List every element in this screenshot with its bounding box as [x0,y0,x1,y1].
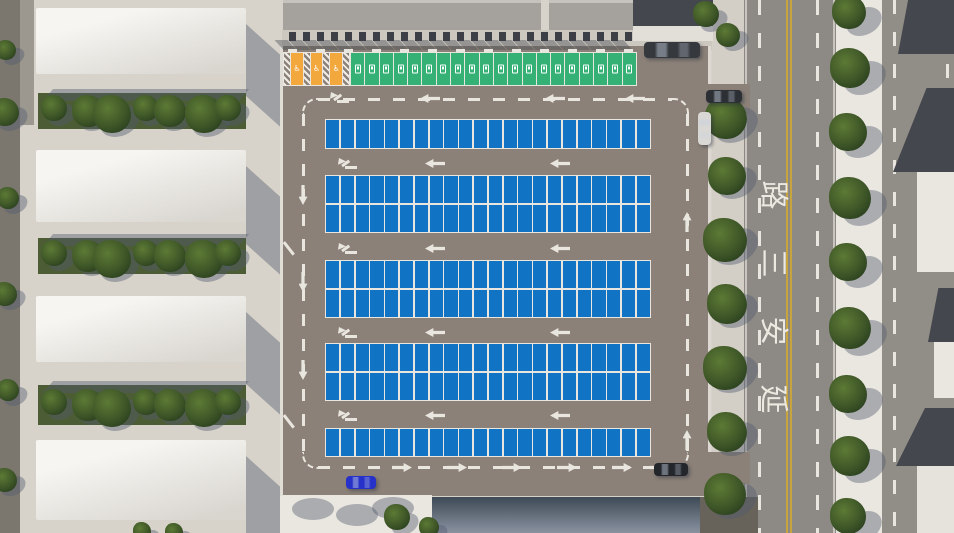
parking-stall-standard [459,176,472,203]
ev-charger-icon-dot [543,67,545,70]
parking-stall-standard [385,261,398,288]
tree-icon [704,473,746,515]
parking-lot-aerial-view: ♿♿♿路三安延 [0,0,954,533]
tree-icon [93,389,131,427]
parking-stall-standard [385,120,398,148]
parking-stall-standard [637,261,650,288]
parking-stall-standard [444,176,457,203]
charging-pile [499,32,506,41]
ev-charger-icon [398,65,404,74]
parking-stall-standard [548,429,561,456]
warehouse-building [36,440,246,520]
tree-icon [703,346,747,390]
parking-stall-standard [592,205,605,232]
parking-stall-standard [533,373,546,400]
standard-stall-row [325,289,651,318]
turn-arrow-marking [337,100,349,103]
tree-icon [703,218,747,262]
west-edge-building [20,0,34,125]
parking-stall-standard [518,120,531,148]
parking-stall-standard [533,429,546,456]
parking-stall-ev [380,53,393,85]
vehicle-windows [707,91,741,102]
turn-arrow-marking [345,418,357,421]
ev-charger-icon [526,65,532,74]
parking-stall-standard [370,290,383,317]
blue-car-bottom-lane [346,476,376,489]
tree-icon [215,389,241,415]
road-name-char: 安 [757,313,791,349]
parking-stall-standard [607,120,620,148]
ev-charger-icon [555,65,561,74]
parking-stall-standard [459,205,472,232]
tree-icon [830,498,866,533]
charging-pile [485,32,492,41]
ev-charger-icon [355,65,361,74]
wheelchair-icon: ♿ [293,65,300,73]
parking-stall-standard [504,120,517,148]
parking-stall-standard [518,261,531,288]
parking-stall-standard [489,344,502,371]
turn-arrow-marking [345,166,357,169]
parking-stall-standard [370,429,383,456]
parking-stall-standard [622,290,635,317]
hatch-buffer [304,53,310,85]
parking-stall-standard [459,373,472,400]
parking-stall-ev [623,53,636,85]
parking-stall-standard [474,429,487,456]
ev-charger-icon-dot [400,67,402,70]
parking-stall-standard [474,205,487,232]
ev-charger-icon-dot [614,67,616,70]
parking-stall-standard [563,176,576,203]
parking-stall-standard [415,261,428,288]
parking-stall-standard [563,261,576,288]
parking-stall-accessible: ♿ [291,53,302,85]
parking-stall-standard [533,261,546,288]
parking-stall-standard [518,290,531,317]
parking-stall-standard [459,429,472,456]
parking-stall-standard [489,429,502,456]
parking-stall-standard [637,176,650,203]
parking-stall-standard [518,205,531,232]
slate-roof-building [432,497,700,533]
parking-stall-standard [622,120,635,148]
parking-stall-standard [474,261,487,288]
ev-charger-icon-dot [457,67,459,70]
ev-charger-icon-dot [585,67,587,70]
lane-divider-dash [816,0,819,533]
warehouse-building [36,8,246,74]
parking-stall-standard [415,290,428,317]
tree-icon [707,412,747,452]
pile-tick-marking [456,49,465,52]
tree-icon [716,23,740,47]
parking-stall-ev [394,53,407,85]
wheelchair-icon: ♿ [333,65,340,73]
ev-charger-icon [483,65,489,74]
parking-stall-ev [508,53,521,85]
parking-stall-standard [592,373,605,400]
parking-stall-ev [523,53,536,85]
tree-icon [215,95,241,121]
ev-charger-icon-dot [414,67,416,70]
parking-stall-standard [430,429,443,456]
parking-stall-standard [607,373,620,400]
pile-tick-marking [540,49,549,52]
parking-stall-standard [607,429,620,456]
road-name-char: 三 [757,245,791,281]
charging-pile [569,32,576,41]
ev-charger-icon [612,65,618,74]
parking-stall-standard [474,344,487,371]
parking-stall-standard [548,120,561,148]
pile-tick-marking [512,49,521,52]
parking-stall-standard [400,261,413,288]
parking-stall-standard [356,290,369,317]
charging-pile [373,32,380,41]
parking-stall-standard [370,176,383,203]
charging-pile [345,32,352,41]
parking-stall-standard [504,290,517,317]
tree-icon [154,95,186,127]
tree-icon [384,504,410,530]
parking-stall-standard [474,290,487,317]
ev-charger-icon-dot [557,67,559,70]
turn-arrow-marking [345,251,357,254]
parking-stall-standard [415,120,428,148]
parking-stall-ev [580,53,593,85]
parking-stall-standard [637,120,650,148]
parking-stall-standard [578,429,591,456]
parking-stall-ev [480,53,493,85]
pile-tick-marking [400,49,409,52]
ev-charger-icon-dot [528,67,530,70]
pile-tick-marking [288,49,297,52]
ev-charger-icon-dot [500,67,502,70]
charging-pile [359,32,366,41]
parking-stall-standard [474,176,487,203]
pile-tick-marking [624,49,633,52]
ev-charger-icon-dot [485,67,487,70]
parking-stall-standard [578,205,591,232]
parking-stall-standard [415,429,428,456]
building-wall [934,342,954,398]
charging-pile [625,32,632,41]
parking-stall-ev [608,53,621,85]
road-name-char: 延 [757,381,791,417]
tree-icon [41,240,67,266]
charging-pile [527,32,534,41]
tree-icon [829,307,871,349]
tree-icon [154,389,186,421]
charging-pile [387,32,394,41]
parking-stall-standard [385,176,398,203]
parking-stall-standard [489,261,502,288]
charging-pile [457,32,464,41]
tree-icon [693,1,719,27]
parking-stall-standard [592,176,605,203]
ev-charger-icon-dot [442,67,444,70]
ev-charger-icon-dot [571,67,573,70]
parking-stall-standard [533,205,546,232]
lot-east-curb [708,46,711,84]
parking-stall-standard [459,290,472,317]
parking-stall-standard [489,373,502,400]
parking-stall-standard [444,261,457,288]
tree-icon [419,517,439,533]
parking-stall-standard [326,290,339,317]
dark-car-exit-lane [654,463,688,476]
parking-stall-standard [578,261,591,288]
parking-stall-standard [385,290,398,317]
parking-stall-standard [400,429,413,456]
parking-stall-standard [370,120,383,148]
parking-stall-standard [326,205,339,232]
charging-pile [429,32,436,41]
parking-stall-standard [607,176,620,203]
ev-charger-icon [512,65,518,74]
charging-pile [471,32,478,41]
parking-stall-standard [563,344,576,371]
road-name-char: 路 [757,177,791,213]
parking-stall-standard [504,429,517,456]
parking-stall-standard [326,120,339,148]
parking-stall-standard [533,176,546,203]
parking-stall-standard [548,373,561,400]
ev-charger-icon [426,65,432,74]
top-building-west [283,0,541,34]
parking-stall-standard [415,373,428,400]
parking-stall-standard [622,373,635,400]
parking-stall-standard [430,344,443,371]
parking-stall-standard [489,290,502,317]
parking-stall-standard [548,261,561,288]
parking-stall-standard [489,205,502,232]
parking-stall-standard [489,176,502,203]
tree-icon [705,97,747,139]
parking-stall-accessible: ♿ [330,53,341,85]
parking-stall-standard [400,344,413,371]
tree-icon [829,243,867,281]
parking-stall-standard [326,429,339,456]
parking-stall-standard [444,429,457,456]
charging-pile [611,32,618,41]
building-wall [917,466,954,533]
parking-stall-standard [430,205,443,232]
parking-stall-standard [578,176,591,203]
parking-stall-standard [459,344,472,371]
standard-stall-row [325,119,651,149]
parking-stall-standard [415,344,428,371]
tree-icon [829,177,871,219]
parking-stall-standard [622,344,635,371]
pile-tick-marking [372,49,381,52]
standard-stall-row [325,260,651,289]
parking-stall-standard [622,261,635,288]
parking-stall-ev [408,53,421,85]
parking-stall-standard [341,261,354,288]
tree-shadow [292,498,334,520]
parking-stall-standard [504,176,517,203]
parking-stall-standard [326,344,339,371]
ev-charger-icon [626,65,632,74]
parking-stall-standard [444,120,457,148]
parking-stall-standard [533,120,546,148]
parking-stall-standard [385,205,398,232]
parking-stall-standard [637,205,650,232]
tree-icon [707,284,747,324]
parking-stall-ev [594,53,607,85]
pile-tick-marking [428,49,437,52]
vehicle-windows [699,113,710,144]
parking-stall-standard [518,344,531,371]
parking-stall-standard [370,261,383,288]
parking-stall-standard [518,429,531,456]
parking-stall-standard [518,176,531,203]
parking-stall-standard [341,120,354,148]
parking-stall-standard [430,261,443,288]
parking-stall-ev [451,53,464,85]
charging-pile [583,32,590,41]
parking-stall-standard [592,429,605,456]
vehicle-windows [347,477,375,488]
west-edge-road [0,0,20,533]
parking-stall-ev [565,53,578,85]
parking-stall-standard [400,176,413,203]
ev-charger-icon-dot [357,67,359,70]
charging-pile [513,32,520,41]
parking-stall-standard [370,344,383,371]
parking-stall-standard [592,120,605,148]
parking-stall-standard [400,205,413,232]
pile-tick-marking [596,49,605,52]
parking-stall-standard [430,120,443,148]
ev-charger-icon-dot [514,67,516,70]
parking-stall-standard [592,290,605,317]
parking-stall-standard [563,290,576,317]
lane-divider-dash [893,0,896,533]
charging-pile [443,32,450,41]
parking-stall-standard [370,373,383,400]
parking-stall-standard [533,290,546,317]
parking-stall-standard [592,344,605,371]
charging-pile [555,32,562,41]
tree-icon [829,375,867,413]
parking-stall-standard [622,176,635,203]
parking-stall-standard [607,344,620,371]
parking-stall-standard [415,176,428,203]
standard-stall-row [325,175,651,204]
ev-charger-icon [412,65,418,74]
parking-stall-standard [578,290,591,317]
parking-stall-standard [341,176,354,203]
ev-charger-icon [583,65,589,74]
hatch-buffer [343,53,349,85]
tree-icon [154,240,186,272]
vehicle-windows [655,464,687,475]
parking-stall-standard [578,120,591,148]
parking-stall-standard [533,344,546,371]
parking-stall-standard [430,176,443,203]
tree-icon [93,240,131,278]
parking-stall-standard [400,290,413,317]
tree-icon [41,389,67,415]
parking-stall-standard [326,261,339,288]
parking-stall-standard [489,120,502,148]
parking-stall-standard [504,261,517,288]
standard-stall-row [325,204,651,233]
parking-stall-ev [437,53,450,85]
tree-icon [829,113,867,151]
parking-stall-standard [385,429,398,456]
parking-stall-standard [578,373,591,400]
ev-charger-icon [469,65,475,74]
dark-van-entrance [706,90,742,103]
pile-tick-marking [344,49,353,52]
charging-pile [317,32,324,41]
parking-stall-accessible: ♿ [311,53,322,85]
white-truck-roadside [698,112,711,145]
parking-stall-standard [400,373,413,400]
parking-stall-standard [326,176,339,203]
pile-tick-marking [316,49,325,52]
charging-pile [541,32,548,41]
parking-stall-standard [548,176,561,203]
parking-stall-standard [592,261,605,288]
parking-stall-standard [370,205,383,232]
parking-stall-standard [637,373,650,400]
ev-charger-icon-dot [385,67,387,70]
parking-stall-standard [607,261,620,288]
tree-icon [41,95,67,121]
ev-charger-icon [569,65,575,74]
parking-stall-standard [607,205,620,232]
wheelchair-icon: ♿ [313,65,320,73]
parking-stall-standard [518,373,531,400]
parking-stall-standard [385,344,398,371]
parking-stall-standard [341,429,354,456]
ev-charger-icon [498,65,504,74]
parking-stall-standard [400,120,413,148]
tree-icon [708,157,746,195]
parking-stall-ev [351,53,364,85]
ev-stall-row [350,52,637,86]
parking-stall-standard [548,205,561,232]
turn-arrow-marking [345,335,357,338]
tree-icon [215,240,241,266]
parking-stall-standard [430,373,443,400]
parking-stall-standard [622,429,635,456]
parking-stall-standard [504,205,517,232]
standard-stall-row [325,372,651,401]
parking-stall-standard [637,344,650,371]
parking-stall-ev [537,53,550,85]
accessible-stall-row: ♿♿♿ [283,52,350,86]
charging-pile [597,32,604,41]
pile-tick-marking [484,49,493,52]
parking-stall-standard [622,205,635,232]
ev-charger-icon [369,65,375,74]
parking-stall-standard [563,373,576,400]
parking-stall-standard [341,344,354,371]
ev-charger-icon [440,65,446,74]
parking-stall-standard [341,205,354,232]
charging-pile [331,32,338,41]
parking-stall-standard [356,176,369,203]
parking-stall-standard [504,373,517,400]
parking-stall-standard [356,429,369,456]
